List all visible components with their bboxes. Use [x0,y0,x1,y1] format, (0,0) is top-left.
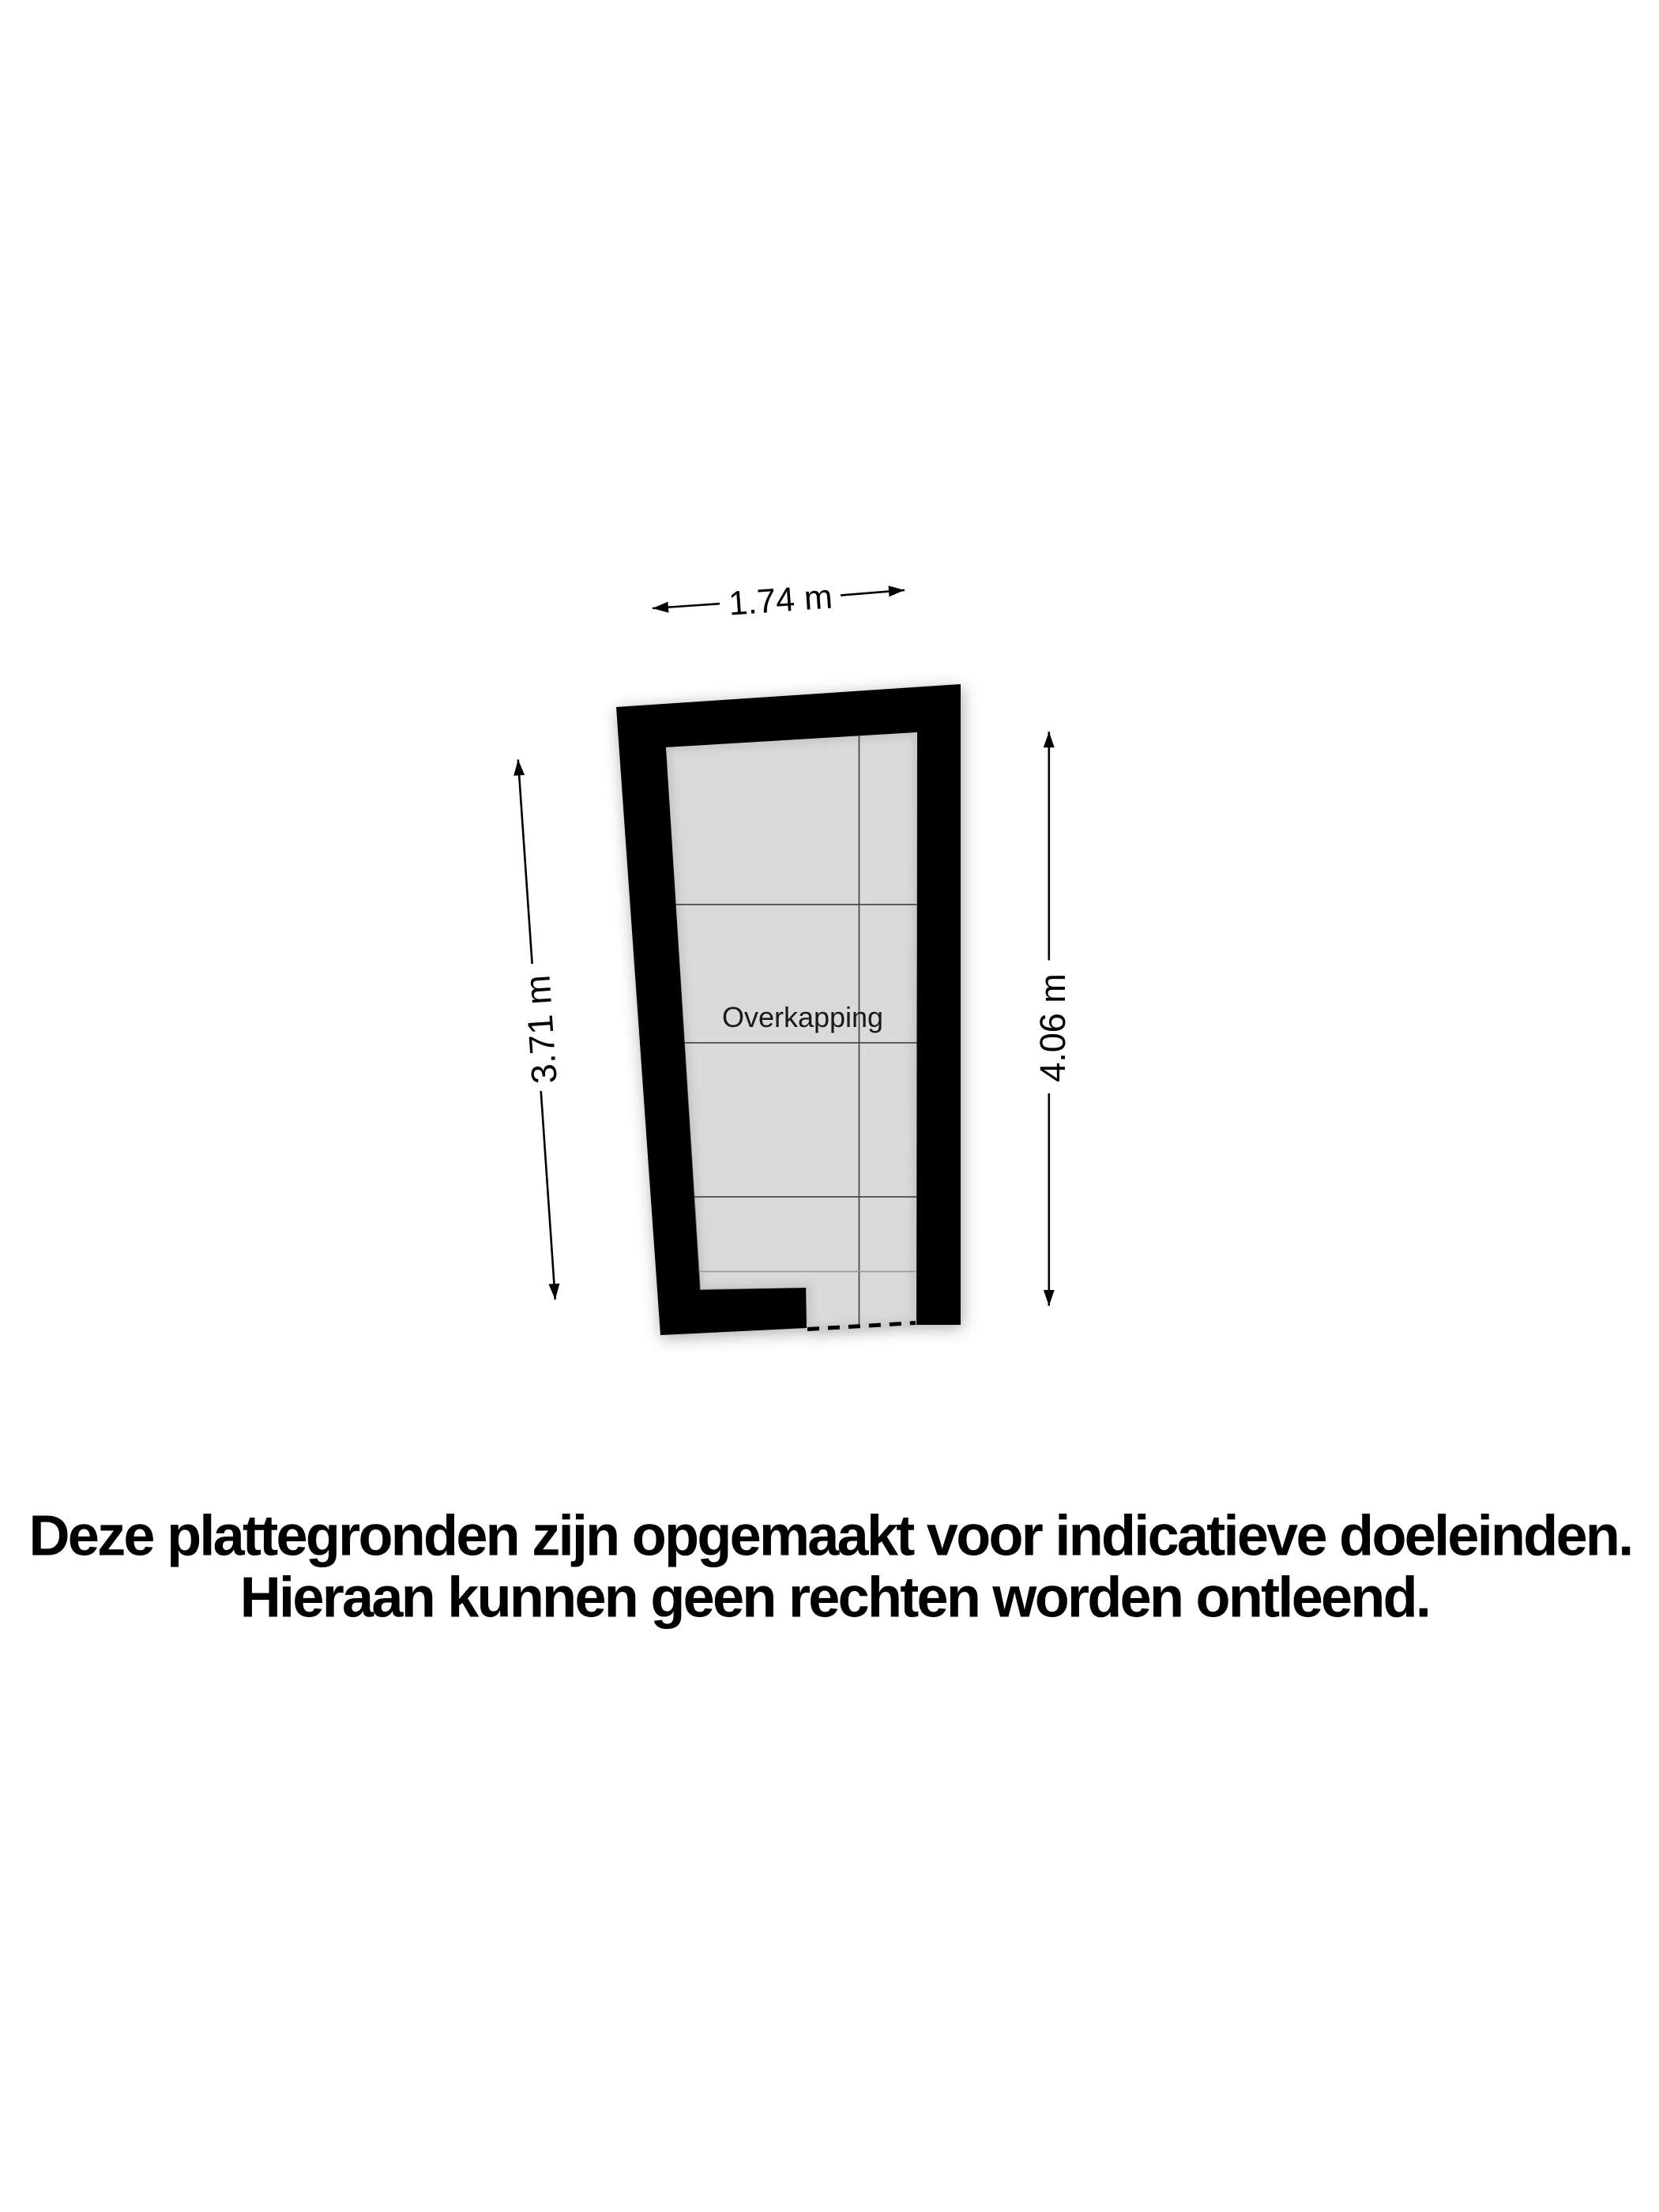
svg-text:Deze plattegronden zijn opgema: Deze plattegronden zijn opgemaakt voor i… [28,1504,1631,1567]
svg-text:Hieraan kunnen geen rechten wo: Hieraan kunnen geen rechten worden ontle… [240,1567,1430,1630]
svg-text:1.74 m: 1.74 m [728,578,833,623]
svg-text:4.06 m: 4.06 m [1033,973,1073,1082]
svg-text:3.71 m: 3.71 m [517,974,564,1085]
svg-text:Overkapping: Overkapping [722,1001,883,1033]
